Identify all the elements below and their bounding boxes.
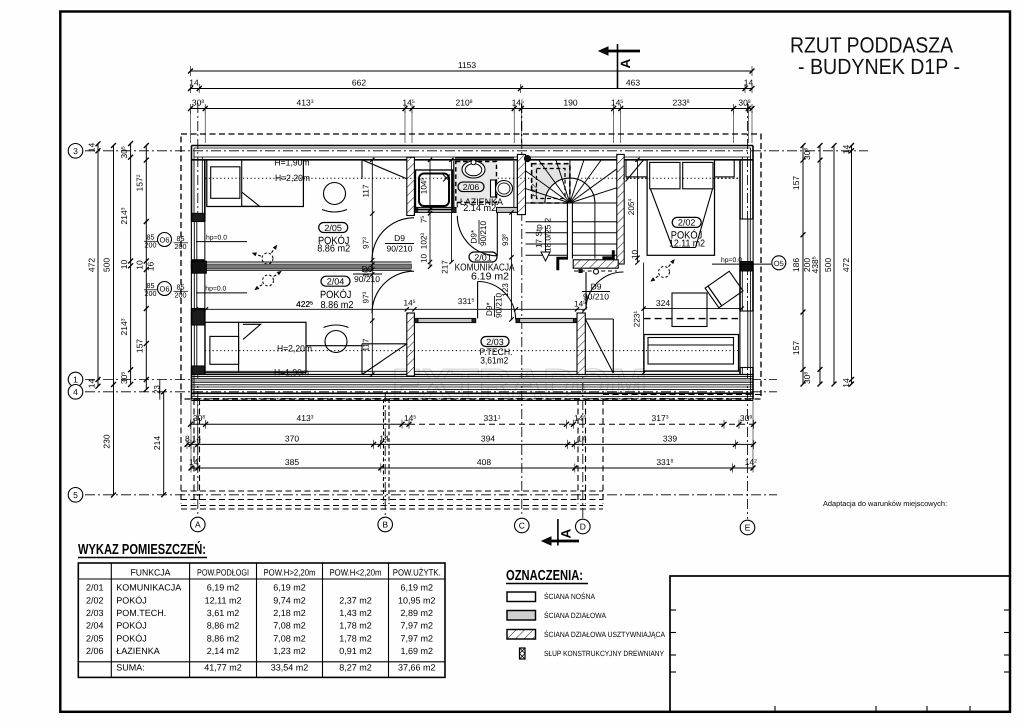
svg-text:14: 14 [87, 379, 97, 389]
svg-text:14: 14 [189, 457, 199, 467]
svg-text:OZNACZENIA:: OZNACZENIA: [506, 568, 583, 584]
svg-text:8,86 m2: 8,86 m2 [207, 621, 240, 631]
svg-text:157: 157 [791, 341, 801, 355]
svg-text:10: 10 [420, 254, 429, 264]
svg-text:hp=0.0: hp=0.0 [206, 234, 227, 241]
svg-text:O6: O6 [159, 236, 169, 245]
svg-text:- BUDYNEK D1P -: - BUDYNEK D1P - [798, 54, 960, 79]
svg-text:90/210: 90/210 [387, 244, 413, 254]
svg-text:14: 14 [841, 145, 851, 155]
svg-text:2/06: 2/06 [86, 646, 104, 656]
svg-text:2/03: 2/03 [486, 337, 504, 347]
svg-text:C: C [519, 521, 525, 531]
svg-text:A: A [618, 59, 633, 69]
svg-text:0,91 m2: 0,91 m2 [339, 646, 372, 656]
svg-text:2.14 m2: 2.14 m2 [463, 203, 496, 214]
svg-text:2/05: 2/05 [86, 633, 104, 643]
svg-text:H=2,20m: H=2,20m [277, 344, 312, 354]
svg-text:1: 1 [73, 375, 78, 385]
svg-text:217: 217 [441, 260, 450, 274]
svg-text:408: 408 [477, 457, 491, 467]
svg-text:2/04: 2/04 [86, 621, 104, 631]
svg-text:hp=0.0: hp=0.0 [205, 285, 226, 292]
svg-text:1,78 m2: 1,78 m2 [339, 633, 372, 643]
svg-text:O6: O6 [159, 285, 169, 294]
svg-text:90/210: 90/210 [479, 221, 488, 246]
svg-text:6.19 m2: 6.19 m2 [471, 271, 509, 282]
svg-text:WYKAZ POMIESZCZEŃ:: WYKAZ POMIESZCZEŃ: [78, 541, 206, 558]
svg-text:POKÓJ: POKÓJ [116, 633, 147, 643]
svg-text:Ł12: Ł12 [530, 184, 539, 197]
svg-text:FUNKCJA: FUNKCJA [130, 568, 170, 578]
svg-text:14: 14 [577, 433, 587, 443]
svg-text:662: 662 [352, 78, 366, 88]
svg-text:157: 157 [135, 339, 145, 353]
svg-text:POKÓJ: POKÓJ [116, 595, 147, 605]
svg-text:E: E [745, 523, 751, 533]
svg-text:230: 230 [102, 434, 112, 448]
svg-text:POKÓJ: POKÓJ [116, 621, 147, 631]
svg-text:SUMA:: SUMA: [116, 663, 145, 673]
svg-text:472: 472 [87, 258, 97, 272]
svg-text:1,23 m2: 1,23 m2 [273, 646, 306, 656]
svg-text:2/05: 2/05 [324, 223, 342, 233]
svg-text:4: 4 [73, 387, 78, 397]
svg-text:POW.PODŁOGI: POW.PODŁOGI [197, 568, 249, 578]
svg-text:190: 190 [563, 98, 577, 108]
svg-text:10: 10 [135, 260, 145, 270]
svg-text:3: 3 [73, 146, 78, 156]
svg-text:D9: D9 [591, 282, 602, 292]
svg-text:37,66 m2: 37,66 m2 [398, 663, 436, 673]
svg-text:394: 394 [481, 433, 495, 443]
svg-text:14: 14 [87, 143, 97, 153]
svg-text:POW.H>2,20m: POW.H>2,20m [264, 568, 316, 578]
svg-text:16: 16 [146, 262, 156, 272]
svg-text:6,19 m2: 6,19 m2 [273, 583, 306, 593]
svg-text:33,54 m2: 33,54 m2 [271, 663, 309, 673]
svg-text:14: 14 [841, 378, 851, 388]
svg-text:7,97 m2: 7,97 m2 [400, 633, 433, 643]
svg-text:KOMUNIKACJA: KOMUNIKACJA [116, 583, 181, 593]
svg-text:POW.H<2,20m: POW.H<2,20m [330, 568, 382, 578]
svg-text:117: 117 [362, 184, 371, 197]
svg-text:O5: O5 [774, 259, 784, 268]
svg-text:18.0/25 2: 18.0/25 2 [544, 217, 553, 252]
svg-text:ŁAZIENKA: ŁAZIENKA [116, 646, 160, 656]
svg-text:123: 123 [501, 283, 510, 297]
svg-text:ŚCIANA NOŚNA: ŚCIANA NOŚNA [544, 592, 596, 601]
svg-text:H=1,90m: H=1,90m [275, 158, 310, 168]
svg-text:5: 5 [73, 490, 78, 500]
svg-text:14: 14 [189, 78, 199, 88]
svg-text:ŚCIANA DZIAŁOWA USZTYWNIAJĄCA: ŚCIANA DZIAŁOWA USZTYWNIAJĄCA [544, 630, 666, 639]
svg-text:hp=0.0: hp=0.0 [721, 257, 742, 264]
svg-text:14: 14 [744, 78, 754, 88]
svg-text:214: 214 [152, 436, 162, 450]
svg-text:370: 370 [285, 433, 299, 443]
svg-text:A: A [195, 520, 201, 530]
svg-text:H=2,20m: H=2,20m [275, 173, 310, 183]
svg-text:12.11 m2: 12.11 m2 [669, 239, 705, 250]
svg-text:2,18 m2: 2,18 m2 [273, 608, 306, 618]
svg-text:2/04: 2/04 [327, 277, 345, 287]
svg-text:1,78 m2: 1,78 m2 [339, 621, 372, 631]
svg-text:500: 500 [823, 258, 833, 272]
svg-text:2/06: 2/06 [463, 182, 480, 192]
svg-text:2/03: 2/03 [86, 608, 104, 618]
svg-text:2/01: 2/01 [86, 583, 104, 593]
svg-text:SŁUP KONSTRUKCYJNY DREWNIANY: SŁUP KONSTRUKCYJNY DREWNIANY [544, 649, 664, 658]
svg-text:1,43 m2: 1,43 m2 [339, 608, 372, 618]
svg-text:8,27 m2: 8,27 m2 [339, 663, 372, 673]
svg-text:41,77 m2: 41,77 m2 [204, 663, 242, 673]
svg-text:8.86 m2: 8.86 m2 [317, 243, 350, 254]
svg-text:2,37 m2: 2,37 m2 [339, 595, 372, 605]
svg-text:2/02: 2/02 [678, 218, 696, 228]
svg-text:14: 14 [379, 433, 389, 443]
svg-text:14: 14 [192, 433, 202, 443]
svg-text:D9: D9 [394, 233, 405, 243]
svg-text:2/01: 2/01 [474, 252, 492, 262]
svg-text:7,08 m2: 7,08 m2 [273, 633, 306, 643]
svg-text:385: 385 [285, 457, 299, 467]
svg-text:2/02: 2/02 [86, 595, 104, 605]
svg-text:186: 186 [791, 258, 801, 272]
svg-text:7,97 m2: 7,97 m2 [400, 621, 433, 631]
svg-text:POM.TECH.: POM.TECH. [116, 608, 166, 618]
svg-text:3,61 m2: 3,61 m2 [207, 608, 240, 618]
svg-text:157: 157 [791, 176, 801, 190]
svg-text:D9*: D9* [470, 229, 479, 243]
svg-text:23: 23 [153, 385, 162, 394]
svg-text:H=1,90m: H=1,90m [274, 368, 309, 378]
svg-text:3,61m2: 3,61m2 [480, 356, 508, 367]
svg-text:ŚCIANA DZIAŁOWA: ŚCIANA DZIAŁOWA [544, 611, 607, 620]
svg-text:10: 10 [362, 268, 371, 278]
svg-text:10: 10 [119, 260, 129, 270]
svg-text:POW.UŻYTK.: POW.UŻYTK. [393, 568, 441, 578]
svg-text:B: B [382, 520, 388, 530]
svg-text:324: 324 [656, 298, 670, 308]
svg-text:8,86 m2: 8,86 m2 [207, 633, 240, 643]
svg-text:12,11 m2: 12,11 m2 [205, 595, 242, 605]
svg-text:Adaptacja do warunków miejscow: Adaptacja do warunków miejscowych: [823, 499, 947, 508]
svg-text:90/210: 90/210 [583, 292, 609, 302]
svg-text:9,74 m2: 9,74 m2 [273, 595, 306, 605]
svg-text:500: 500 [102, 258, 112, 272]
svg-text:472: 472 [841, 258, 851, 272]
svg-text:2,89 m2: 2,89 m2 [400, 608, 433, 618]
svg-text:117: 117 [362, 338, 371, 351]
svg-text:6,19 m2: 6,19 m2 [400, 583, 433, 593]
svg-text:339: 339 [663, 433, 677, 443]
svg-text:2,14 m2: 2,14 m2 [207, 646, 240, 656]
svg-text:463: 463 [626, 78, 640, 88]
svg-text:10: 10 [631, 250, 640, 260]
svg-text:A: A [559, 529, 574, 539]
svg-text:17 Stp: 17 Stp [535, 224, 544, 248]
svg-text:10,95 m2: 10,95 m2 [398, 595, 436, 605]
svg-text:1,69 m2: 1,69 m2 [400, 646, 433, 656]
svg-text:7,08 m2: 7,08 m2 [273, 621, 306, 631]
svg-text:D9*: D9* [485, 302, 494, 316]
svg-text:D: D [580, 522, 586, 532]
svg-text:6,19 m2: 6,19 m2 [207, 583, 240, 593]
svg-text:1153: 1153 [458, 60, 477, 70]
